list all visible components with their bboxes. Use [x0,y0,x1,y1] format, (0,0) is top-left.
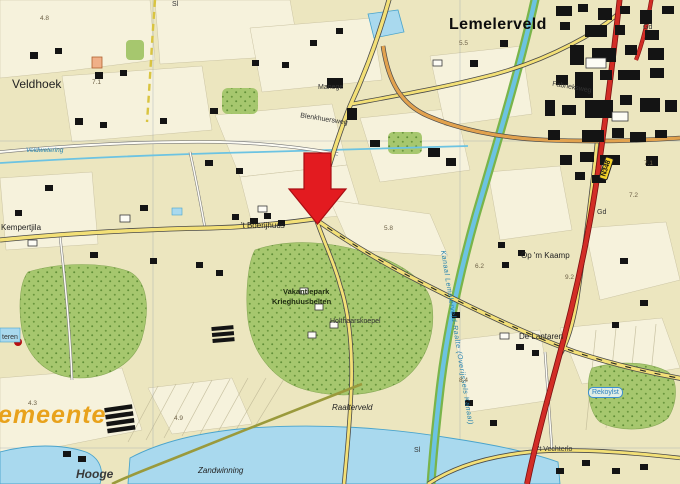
notable-building [92,57,102,68]
map-graphics [0,0,680,484]
topographic-map-canvas[interactable]: LemelerveldVeldhoekManegeBlenkhuersweg't… [0,0,680,484]
